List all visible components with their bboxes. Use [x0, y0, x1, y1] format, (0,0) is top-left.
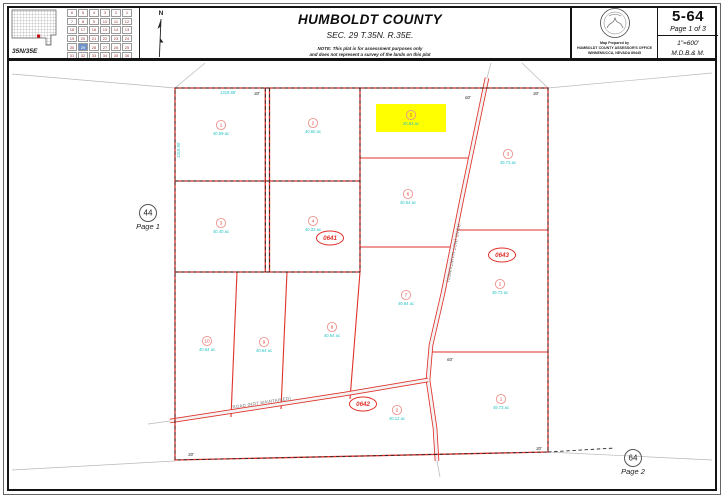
block-label-0642: 0642: [350, 397, 377, 411]
svg-text:40.64 ac: 40.64 ac: [398, 301, 414, 306]
road-not-maintained-east-west: [170, 380, 428, 421]
parcel-label-0641-7: 7 40.64 ac: [398, 290, 414, 306]
page-ref-64: 64 Page 2: [621, 450, 646, 477]
county-title: HUMBOLDT COUNTY: [220, 12, 520, 27]
section-cell: 28: [89, 43, 99, 51]
svg-text:2: 2: [499, 282, 502, 288]
svg-text:4: 4: [312, 219, 315, 225]
section-cell: 25: [122, 43, 132, 51]
parcel-label-0641-3: 3 40.40 ac: [213, 218, 229, 234]
prepared-by-text: Map Prepared by HUMBOLDT COUNTY ASSESSOR…: [572, 41, 657, 56]
svg-text:40.64 ac: 40.64 ac: [324, 333, 340, 338]
section-cell: 18: [67, 26, 77, 34]
svg-text:5: 5: [410, 113, 413, 119]
svg-text:6: 6: [407, 192, 410, 198]
section-corner-tie-lines: [12, 63, 712, 477]
svg-text:8: 8: [331, 325, 334, 331]
section-cell: 23: [111, 35, 121, 43]
section-cell: 4: [89, 9, 99, 17]
svg-text:30': 30': [188, 452, 194, 457]
parcel-label-0641-9: 9 40.64 ac: [256, 337, 272, 353]
map-number-cell: 5-64 Page 1 of 3 1"=600' M.D.B.& M.: [658, 6, 718, 58]
title-block: HUMBOLDT COUNTY SEC. 29 T.35N. R.35E. NO…: [220, 12, 520, 58]
section-cell: 30: [67, 43, 77, 51]
header-separator: [7, 58, 717, 61]
header-divider: [139, 8, 140, 58]
section-cell: 22: [100, 35, 110, 43]
block-label-0641: 0641: [317, 231, 344, 245]
section-subtitle: SEC. 29 T.35N. R.35E.: [220, 30, 520, 40]
section-cell-highlighted: 29: [78, 43, 88, 51]
section-cell: 17: [78, 26, 88, 34]
svg-text:2: 2: [312, 121, 315, 127]
svg-text:64: 64: [629, 454, 638, 463]
section-cell: 2: [111, 9, 121, 17]
svg-text:N: N: [159, 10, 164, 17]
svg-text:0641: 0641: [323, 235, 337, 242]
page-of-label: Page 1 of 3: [658, 26, 718, 33]
section-cell: 15: [100, 26, 110, 34]
section-cell: 13: [122, 26, 132, 34]
north-arrow: N: [146, 7, 176, 59]
svg-text:44: 44: [144, 209, 153, 218]
assessor-plat-page: 1 40.59 ac 2 40.60 ac 3 40.40 ac 4 40.33…: [0, 0, 724, 498]
township-highlight-cell: [37, 35, 40, 38]
section-cell: 19: [67, 35, 77, 43]
section-cell: 11: [111, 18, 121, 26]
parcel-label-0641-6: 6 40.54 ac: [400, 189, 416, 205]
section-cell: 16: [89, 26, 99, 34]
township-range-label: 35N/35E: [12, 48, 37, 55]
svg-text:9: 9: [263, 340, 266, 346]
county-locator-map: [11, 8, 67, 48]
assessor-seal-cell: Map Prepared by HUMBOLDT COUNTY ASSESSOR…: [572, 6, 658, 58]
svg-text:30': 30': [533, 91, 539, 96]
svg-text:60': 60': [447, 357, 453, 362]
info-divider: [658, 35, 718, 36]
section-cell: 6: [67, 9, 77, 17]
section-cell: 20: [78, 35, 88, 43]
svg-text:40.64 ac: 40.64 ac: [199, 347, 215, 352]
section-cell: 10: [100, 18, 110, 26]
section-cell: 14: [111, 26, 121, 34]
page-ref-44: 44 Page 1: [136, 205, 160, 232]
svg-text:3: 3: [507, 152, 510, 158]
parcel-label-0641-8: 8 40.64 ac: [324, 322, 340, 338]
parcel-label-0643-2: 2 49.73 ac: [492, 279, 508, 295]
svg-text:40.64 ac: 40.64 ac: [256, 348, 272, 353]
svg-text:1319.86': 1319.86': [220, 90, 236, 95]
section-cell: 7: [67, 18, 77, 26]
svg-text:2: 2: [396, 408, 399, 414]
section-cell: 27: [100, 43, 110, 51]
svg-text:7: 7: [405, 293, 408, 299]
svg-text:40.64 ac: 40.64 ac: [403, 121, 419, 126]
map-number: 5-64: [658, 8, 718, 25]
parcel-label-0643-3: 3 49.73 ac: [500, 149, 516, 165]
svg-text:1: 1: [220, 123, 223, 129]
svg-text:Page 2: Page 2: [621, 467, 646, 476]
nw-block-boundary: [175, 88, 360, 272]
parcel-label-0641-4: 4 40.33 ac: [305, 216, 321, 232]
svg-text:49.73 ac: 49.73 ac: [500, 160, 516, 165]
svg-text:0643: 0643: [495, 252, 509, 259]
section-line-continuation: [548, 448, 615, 452]
section-cell: 21: [89, 35, 99, 43]
svg-text:1: 1: [500, 397, 503, 403]
svg-text:60': 60': [465, 95, 471, 100]
parcel-label-0641-1: 1 40.59 ac: [213, 120, 229, 136]
assessor-seal-icon: [573, 6, 657, 40]
svg-text:40.59 ac: 40.59 ac: [213, 131, 229, 136]
road-not-maintained-north-south: [428, 78, 487, 461]
township-section-grid: 6543217891011121817161514131920212223243…: [67, 9, 132, 60]
svg-text:49.73 ac: 49.73 ac: [492, 290, 508, 295]
svg-text:0642: 0642: [356, 401, 370, 408]
svg-text:10: 10: [204, 339, 210, 345]
parcel-label-0641-2: 2 40.60 ac: [305, 118, 321, 134]
svg-text:40.60 ac: 40.60 ac: [305, 129, 321, 134]
svg-text:40.40 ac: 40.40 ac: [213, 229, 229, 234]
parcel-label-0641-10: 10 40.64 ac: [199, 336, 215, 352]
svg-text:40.33 ac: 40.33 ac: [305, 227, 321, 232]
svg-text:40.54 ac: 40.54 ac: [400, 200, 416, 205]
svg-text:1319.80': 1319.80': [176, 142, 181, 158]
section-cell: 12: [122, 18, 132, 26]
svg-text:3: 3: [220, 221, 223, 227]
assessment-note: NOTE: This plat is for assessment purpos…: [220, 46, 520, 58]
svg-text:30': 30': [254, 91, 260, 96]
section-cell: 26: [111, 43, 121, 51]
section-cell: 1: [122, 9, 132, 17]
plat-map: 1 40.59 ac 2 40.60 ac 3 40.40 ac 4 40.33…: [0, 0, 724, 498]
section-cell: 3: [100, 9, 110, 17]
section-cell: 8: [78, 18, 88, 26]
svg-text:Page 1: Page 1: [136, 222, 160, 231]
map-scale: 1"=600': [658, 39, 718, 49]
svg-text:49.73 ac: 49.73 ac: [493, 405, 509, 410]
section-cell: 9: [89, 18, 99, 26]
parcel-label-0643-1: 1 49.73 ac: [493, 394, 509, 410]
block-label-0643: 0643: [489, 248, 516, 262]
title-info-panel: Map Prepared by HUMBOLDT COUNTY ASSESSOR…: [570, 6, 718, 58]
section-cell: 5: [78, 9, 88, 17]
svg-text:30': 30': [536, 446, 542, 451]
svg-text:40.12 ac: 40.12 ac: [389, 416, 405, 421]
parcel-label-0642-2: 2 40.12 ac: [389, 405, 405, 421]
section-cell: 24: [122, 35, 132, 43]
